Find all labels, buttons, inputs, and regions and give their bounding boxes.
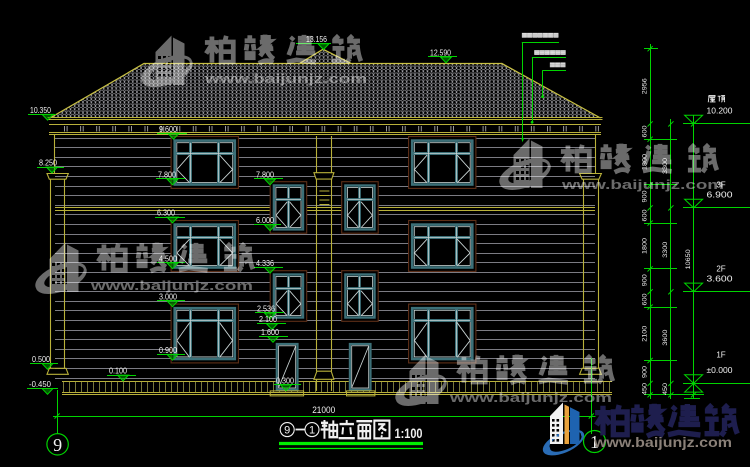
- svg-text:2.536: 2.536: [257, 304, 275, 313]
- svg-text:2956: 2956: [642, 78, 649, 94]
- svg-text:10650: 10650: [685, 249, 692, 269]
- svg-text:450: 450: [642, 383, 649, 395]
- svg-text:www.baijunjz.com: www.baijunjz.com: [593, 435, 732, 450]
- svg-text:www.baijunjz.com: www.baijunjz.com: [561, 177, 724, 192]
- svg-text:1800: 1800: [642, 238, 649, 254]
- svg-text:4.336: 4.336: [256, 259, 274, 268]
- svg-text:3.600: 3.600: [707, 274, 734, 283]
- svg-text:600: 600: [642, 209, 649, 221]
- svg-text:1.600: 1.600: [261, 328, 279, 337]
- svg-text:10.350: 10.350: [30, 106, 51, 115]
- svg-text:0.900: 0.900: [159, 346, 177, 355]
- svg-text:600: 600: [642, 125, 649, 137]
- svg-text:900: 900: [642, 190, 649, 202]
- svg-text:900: 900: [642, 274, 649, 286]
- svg-text:21000: 21000: [312, 405, 335, 415]
- svg-text:7.800: 7.800: [158, 170, 176, 179]
- svg-text:3600: 3600: [662, 329, 669, 345]
- svg-text:9: 9: [53, 435, 62, 455]
- svg-text:0.500: 0.500: [32, 355, 50, 364]
- svg-text:12.590: 12.590: [430, 48, 451, 57]
- svg-text:450: 450: [662, 383, 669, 395]
- svg-text:8.250: 8.250: [39, 159, 57, 168]
- svg-text:9.600: 9.600: [159, 125, 177, 134]
- svg-text:2.100: 2.100: [259, 315, 277, 324]
- svg-text:1F: 1F: [716, 351, 725, 360]
- svg-text:±0.000: ±0.000: [707, 366, 734, 375]
- svg-text:2F: 2F: [716, 265, 725, 274]
- svg-text:1:100: 1:100: [395, 426, 423, 441]
- svg-text:6.000: 6.000: [256, 216, 274, 225]
- svg-text:1: 1: [309, 425, 315, 437]
- svg-text:7.800: 7.800: [256, 170, 274, 179]
- svg-text:6.300: 6.300: [157, 209, 175, 218]
- svg-text:0.300: 0.300: [276, 376, 294, 385]
- svg-text:900: 900: [642, 366, 649, 378]
- svg-text:3300: 3300: [662, 242, 669, 258]
- svg-text:10.200: 10.200: [707, 106, 734, 115]
- svg-text:9: 9: [284, 425, 290, 437]
- svg-text:0.100: 0.100: [109, 367, 127, 376]
- svg-text:-0.450: -0.450: [29, 380, 51, 389]
- svg-text:3.000: 3.000: [159, 292, 177, 301]
- svg-text:www.baijunjz.com: www.baijunjz.com: [90, 278, 253, 293]
- svg-text:2100: 2100: [642, 326, 649, 342]
- svg-text:www.baijunjz.com: www.baijunjz.com: [449, 390, 612, 405]
- svg-text:600: 600: [642, 293, 649, 305]
- svg-text:www.baijunjz.com: www.baijunjz.com: [204, 71, 367, 86]
